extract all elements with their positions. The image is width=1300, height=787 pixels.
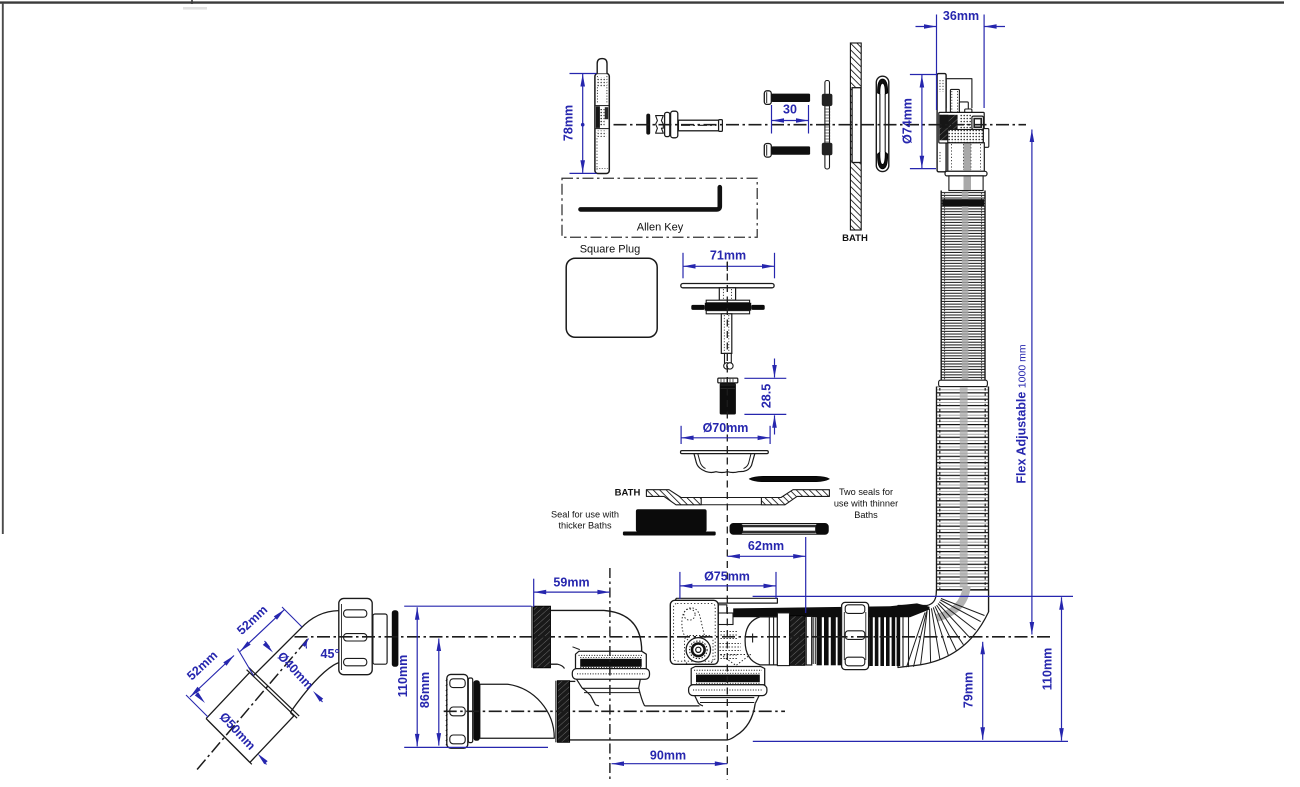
svg-text:45°: 45° [321,647,340,661]
svg-text:thicker Baths: thicker Baths [558,521,612,531]
svg-text:Ø74mm: Ø74mm [901,98,915,144]
svg-text:BATH: BATH [842,233,868,244]
svg-text:Allen Key: Allen Key [637,222,684,234]
svg-text:30: 30 [783,103,797,117]
svg-text:BATH: BATH [615,488,641,499]
svg-text:78mm: 78mm [562,105,576,141]
svg-text:86mm: 86mm [418,672,432,708]
svg-text:110mm: 110mm [396,655,410,697]
svg-text:110mm: 110mm [1041,648,1055,690]
svg-text:Baths: Baths [854,510,878,520]
svg-text:Square Plug: Square Plug [580,244,641,256]
svg-text:79mm: 79mm [962,672,976,708]
svg-text:Ø70mm: Ø70mm [703,421,749,435]
svg-text:62mm: 62mm [748,539,784,553]
svg-text:36mm: 36mm [943,9,979,23]
svg-text:Flex Adjustable 1000 mm: Flex Adjustable 1000 mm [1015,344,1029,483]
svg-text:Two seals for: Two seals for [839,487,893,497]
svg-text:90mm: 90mm [650,749,686,763]
svg-text:Seal for use with: Seal for use with [551,510,619,520]
svg-text:use with thinner: use with thinner [834,499,898,509]
svg-text:28.5: 28.5 [760,384,774,408]
svg-text:59mm: 59mm [553,576,589,590]
svg-text:Ø75mm: Ø75mm [704,570,750,584]
svg-text:71mm: 71mm [710,249,746,263]
